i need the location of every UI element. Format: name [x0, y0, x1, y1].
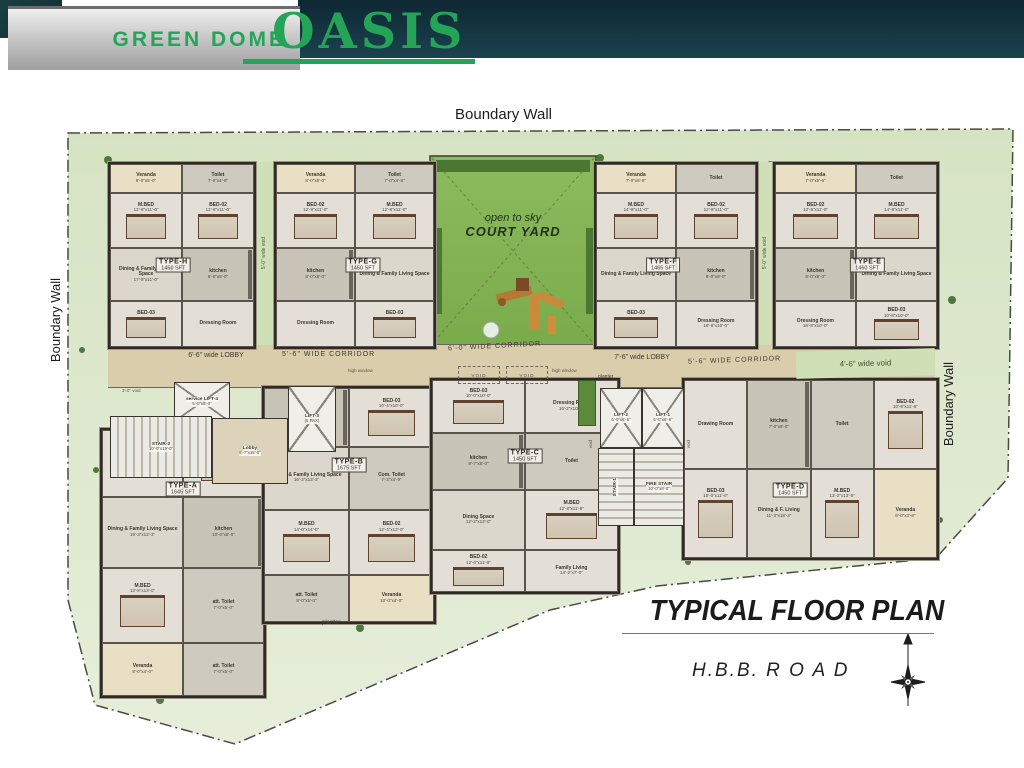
- room-bed-03: BED-0310'-0"x10'-0": [432, 380, 525, 433]
- unit-label: TYPE-F1465 SFT: [646, 257, 680, 272]
- unit-label: TYPE-B1675 SFT: [332, 458, 367, 473]
- hedge-top: [436, 160, 590, 172]
- stair-2: STAIR-210'-0"x19'-0": [110, 416, 212, 478]
- room-bed-02: BED-0210'-8"x11'-8": [874, 380, 937, 469]
- planter-label: planter: [598, 374, 613, 380]
- room-com-toilet: Com. Toilet7'-3"x4'-9": [349, 447, 434, 510]
- floor-plan-page: GREEN DOME OASIS Boundary Wall Boundary …: [0, 0, 1024, 768]
- room-m-bed: M.BED13'-8"x13'-0": [102, 568, 183, 642]
- room-toilet: Toilet7'-0"x4'-8": [355, 164, 434, 193]
- lobby-center-label: 7'-6" wide LOBBY: [612, 354, 672, 361]
- room-att-toilet: att. Toilet8'-0"x5'-0": [264, 575, 349, 622]
- void-label: void: [588, 440, 593, 448]
- room-drawing-room: Drawing Room: [684, 380, 747, 469]
- void-label: void: [686, 440, 691, 448]
- plan-title: TYPICAL FLOOR PLAN: [650, 595, 935, 628]
- unit-type-h: Veranda8'-0"x5'-0"Toilet7'-0"x4'-8"M.BED…: [108, 162, 256, 349]
- unit-label: TYPE-C1450 SFT: [508, 449, 543, 464]
- rooms-type-f: Veranda7'-0"x5'-6"ToiletM.BED14'-8"x11'-…: [596, 164, 756, 347]
- room-dressing-room: Dressing Room: [182, 301, 254, 347]
- room-family-living: Family Living14'-2"x7'-0": [525, 550, 618, 592]
- boundary-wall-label-left: Boundary Wall: [48, 278, 63, 362]
- room-kitchen: kitchen8'-0"x8'-0": [676, 248, 756, 301]
- courtyard: [430, 156, 596, 346]
- unit-type-d: Drawing Roomkitchen7'-0"x8'-0"ToiletBED-…: [682, 378, 939, 560]
- room-dining-family-living-space: Dining & Family Living Space: [856, 248, 937, 301]
- room-m-bed: M.BED12'-8"x11'-0": [110, 193, 182, 248]
- title-rule: [622, 633, 934, 634]
- room-kitchen: kitchen8'-0"x8'-0": [182, 248, 254, 301]
- room-bed-03: BED-03: [596, 301, 676, 347]
- room-bed-03: BED-0310'-8"x10'-0": [856, 301, 937, 347]
- room-veranda: Veranda10'-0"x4'-0": [349, 575, 434, 622]
- room-dining-family-living-space: Dining & Family Living Space17'-8"x11'-0…: [110, 248, 182, 301]
- pond: [483, 322, 499, 338]
- room-bed-02: BED-0212'-8"x11'-0": [276, 193, 355, 248]
- road-label: H.B.B. R O A D: [692, 660, 850, 682]
- room-kitchen: kitchen7'-0"x8'-0": [747, 380, 810, 469]
- room-dressing-room: Dressing Room18'-8"x10'-0": [676, 301, 756, 347]
- room-bed-02: BED-0212'-0"x11'-8": [432, 550, 525, 592]
- rooms-type-e: Veranda7'-0"x5'-6"ToiletBED-0212'-8"x11'…: [775, 164, 937, 347]
- boundary-wall-label-top: Boundary Wall: [455, 106, 552, 123]
- room-m-bed: M.BED14'-0"x14'-0": [264, 510, 349, 576]
- room-toilet: Toilet: [856, 164, 937, 193]
- room-att-toilet: att. Toilet7'-0"x5'-0": [183, 643, 264, 696]
- room-veranda: Veranda8'-0"x5'-0": [276, 164, 355, 193]
- room-bed-02: BED-0212'-8"x11'-0": [676, 193, 756, 248]
- room-dining-family-living-space: Dining & Family Living Space: [596, 248, 676, 301]
- room-bed-03: BED-0310'-4"x10'-0": [349, 388, 434, 447]
- room-kitchen: kitchen8'-0"x8'-0": [775, 248, 856, 301]
- room-dining-family-living-space: Dining & Family Living Space19'-3"x13'-3…: [102, 497, 183, 569]
- fire-stair: FIRE STAIR10'-0"x8'-0": [634, 448, 684, 526]
- boundary-wall-label-right: Boundary Wall: [941, 362, 956, 446]
- unit-label: TYPE-A1645 SFT: [166, 481, 201, 496]
- room-veranda: Veranda8'-0"x4'-0": [102, 643, 183, 696]
- room-bed-02: BED-0212'-4"x13'-0": [349, 510, 434, 576]
- void-small-label: 3'-0" void: [122, 388, 140, 393]
- logo-underline: [243, 59, 475, 64]
- room-dining-family-living-space: Dining & Family Living Space: [355, 248, 434, 301]
- room-m-bed: M.BED14'-8"x11'-0": [856, 193, 937, 248]
- lobby-left-label: 6'-6" wide LOBBY: [188, 352, 244, 359]
- void-right-label: 4'-6" wide void: [796, 348, 936, 379]
- room-bed-03: BED-03: [355, 301, 434, 347]
- room-bed-03: BED-03: [110, 301, 182, 347]
- room-bed-02: BED-0212'-8"x11'-0": [775, 193, 856, 248]
- void-box: VOID: [506, 366, 548, 384]
- room-dressing-room: Dressing Room18'-8"x10'-0": [775, 301, 856, 347]
- compass-icon: [891, 634, 925, 706]
- room-m-bed: M.BED12'-8"x11'-0": [355, 193, 434, 248]
- lobby: Lobby8'-7"x15'-0": [212, 418, 288, 484]
- high-window-label: high window: [552, 368, 577, 373]
- void-box: VOID: [458, 366, 500, 384]
- room-veranda: Veranda8'-0"x3'-8": [874, 469, 937, 558]
- unit-label: TYPE-E1460 SFT: [850, 257, 884, 272]
- lift-3: LIFT-3(6 PAX): [288, 386, 336, 452]
- room-bed-02: BED-0212'-8"x11'-0": [182, 193, 254, 248]
- corridor-left-label: 5'-6" WIDE CORRIDOR: [282, 351, 375, 358]
- room-toilet: Toilet7'-0"x4'-8": [182, 164, 254, 193]
- room-kitchen: kitchen8'-0"x8'-0": [276, 248, 355, 301]
- courtyard-label: open to sky COURT YARD: [438, 212, 588, 239]
- lift-2: LIFT-26'-0"x6'-6": [600, 388, 642, 448]
- planter-label: planter: [322, 620, 340, 626]
- unit-type-f: Veranda7'-0"x5'-6"ToiletM.BED14'-8"x11'-…: [594, 162, 758, 349]
- unit-type-g: Veranda8'-0"x5'-0"Toilet7'-0"x4'-8"BED-0…: [274, 162, 436, 349]
- room-m-bed: M.BED13'-2"x13'-8": [811, 469, 874, 558]
- room-dining-space: Dining Space12'-2"x13'-0": [432, 490, 525, 549]
- stair-1: STAIR-1: [598, 448, 634, 526]
- room-m-bed: M.BED14'-8"x11'-0": [596, 193, 676, 248]
- room-toilet: Toilet: [676, 164, 756, 193]
- rooms-type-d: Drawing Roomkitchen7'-0"x8'-0"ToiletBED-…: [684, 380, 937, 558]
- room-veranda: Veranda7'-0"x5'-6": [596, 164, 676, 193]
- project-title: OASIS: [272, 2, 466, 60]
- room-veranda: Veranda7'-0"x5'-6": [775, 164, 856, 193]
- unit-label: TYPE-G1450 SFT: [345, 257, 380, 272]
- planter: [578, 380, 596, 426]
- rooms-type-g: Veranda8'-0"x5'-0"Toilet7'-0"x4'-8"BED-0…: [276, 164, 434, 347]
- brand-name: GREEN DOME: [112, 28, 286, 52]
- room-toilet: Toilet: [811, 380, 874, 469]
- high-window-label: high window: [348, 368, 373, 373]
- room-dressing-room: Dressing Room: [276, 301, 355, 347]
- rooms-type-h: Veranda8'-0"x5'-0"Toilet7'-0"x4'-8"M.BED…: [110, 164, 254, 347]
- room-att-toilet: att. Toilet7'-0"x5'-0": [183, 568, 264, 642]
- room-kitchen: kitchen10'-0"x8'-0": [183, 497, 264, 569]
- unit-label: TYPE-D1450 SFT: [773, 483, 808, 498]
- unit-type-e: Veranda7'-0"x5'-6"ToiletBED-0212'-8"x11'…: [773, 162, 939, 349]
- room-bed-03: BED-0310'-0"x11'-0": [684, 469, 747, 558]
- room-veranda: Veranda8'-0"x5'-0": [110, 164, 182, 193]
- lift-1: LIFT-16'-0"x6'-6": [642, 388, 684, 448]
- unit-label: TYPE-H1450 SFT: [156, 257, 191, 272]
